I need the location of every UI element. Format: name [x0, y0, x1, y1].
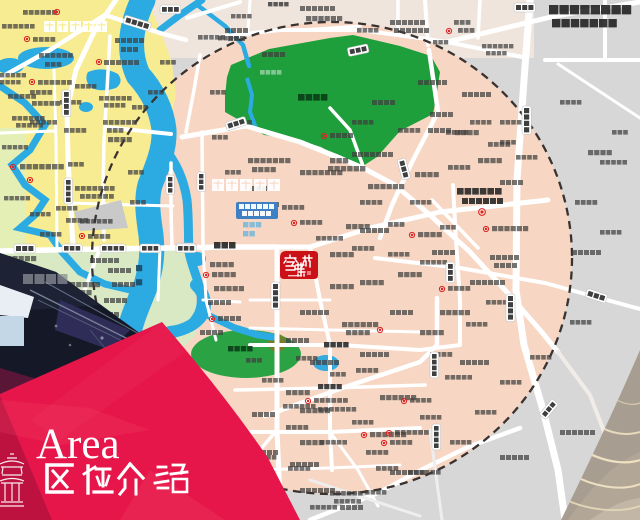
svg-text:Area: Area	[36, 421, 120, 468]
